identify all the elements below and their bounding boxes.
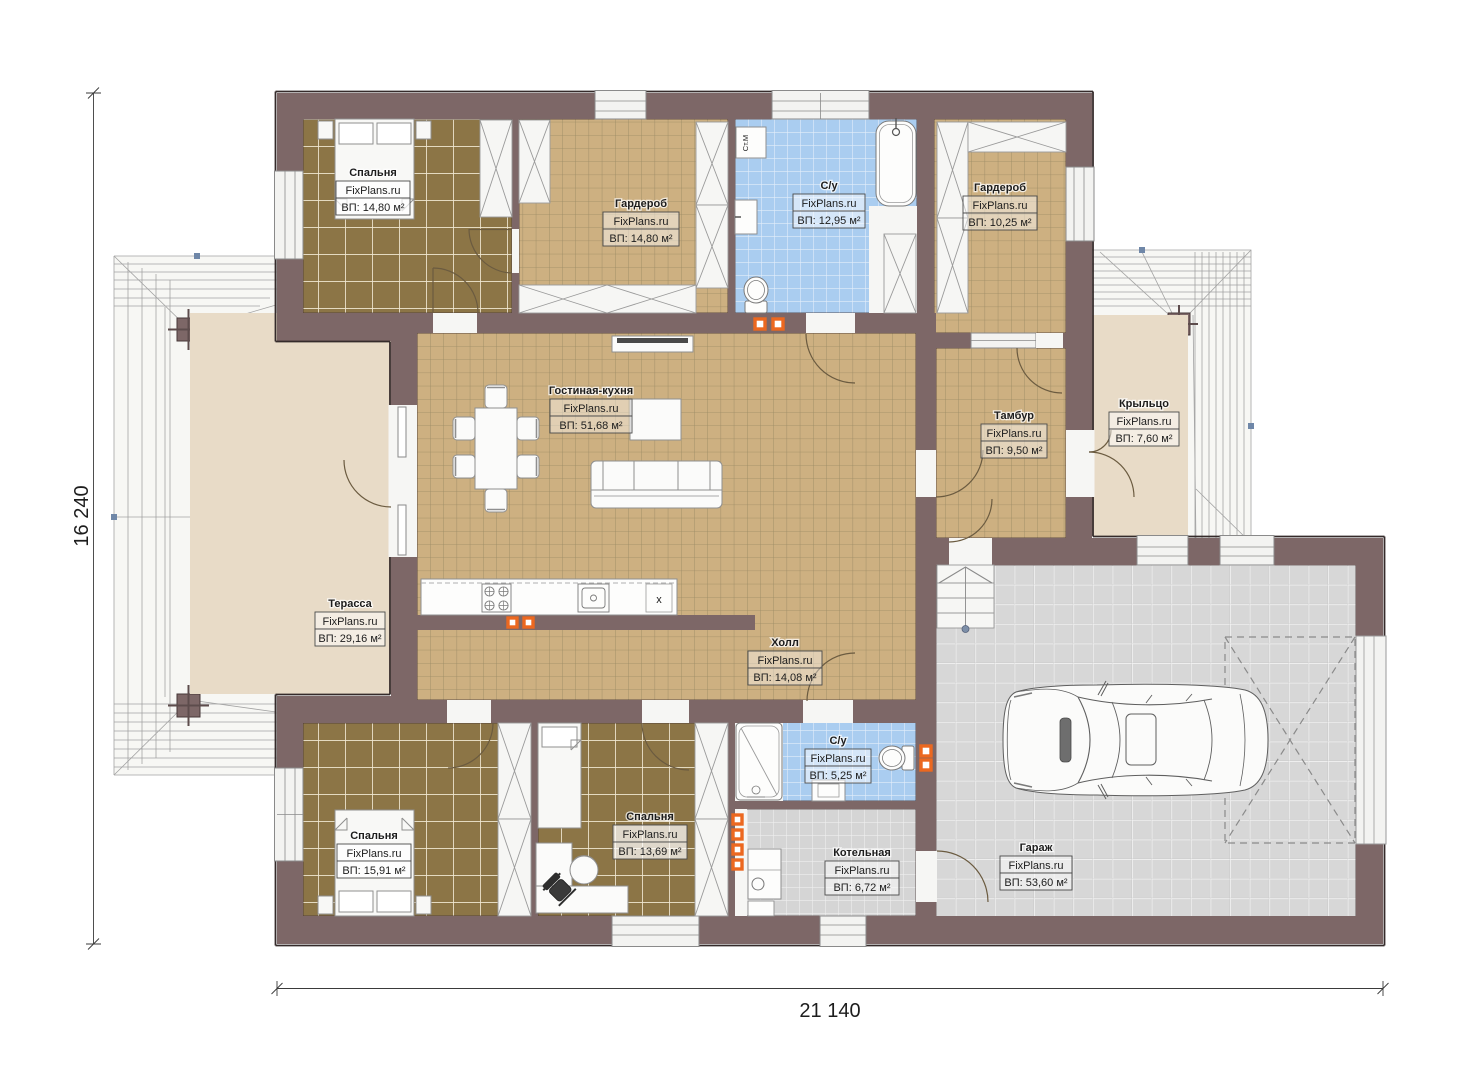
svg-text:Спальня: Спальня: [349, 167, 397, 179]
svg-text:ВП: 10,25 м²: ВП: 10,25 м²: [968, 217, 1032, 229]
svg-text:Котельная: Котельная: [833, 847, 891, 859]
svg-text:FixPlans.ru: FixPlans.ru: [801, 198, 856, 210]
svg-text:FixPlans.ru: FixPlans.ru: [810, 753, 865, 765]
svg-text:FixPlans.ru: FixPlans.ru: [1008, 860, 1063, 872]
svg-text:FixPlans.ru: FixPlans.ru: [972, 200, 1027, 212]
svg-text:Гостиная-кухня: Гостиная-кухня: [549, 385, 633, 397]
svg-text:Тамбур: Тамбур: [994, 410, 1034, 422]
svg-text:FixPlans.ru: FixPlans.ru: [986, 428, 1041, 440]
svg-text:Гараж: Гараж: [1020, 842, 1053, 854]
svg-text:Гардероб: Гардероб: [974, 182, 1026, 194]
svg-text:FixPlans.ru: FixPlans.ru: [834, 865, 889, 877]
svg-text:ВП: 13,69 м²: ВП: 13,69 м²: [618, 846, 682, 858]
svg-text:Гардероб: Гардероб: [615, 198, 667, 210]
svg-text:x: x: [656, 594, 662, 606]
svg-text:ВП: 14,08 м²: ВП: 14,08 м²: [753, 672, 817, 684]
svg-text:С/у: С/у: [829, 735, 847, 747]
svg-text:Спальня: Спальня: [626, 811, 674, 823]
svg-text:Терасса: Терасса: [328, 598, 372, 610]
svg-text:ВП: 9,50 м²: ВП: 9,50 м²: [985, 445, 1042, 457]
svg-text:ВП: 15,91 м²: ВП: 15,91 м²: [342, 865, 406, 877]
svg-text:Ст.М: Ст.М: [741, 135, 750, 151]
svg-text:FixPlans.ru: FixPlans.ru: [1116, 416, 1171, 428]
svg-text:FixPlans.ru: FixPlans.ru: [613, 216, 668, 228]
svg-text:ВП: 12,95 м²: ВП: 12,95 м²: [797, 215, 861, 227]
svg-text:FixPlans.ru: FixPlans.ru: [622, 829, 677, 841]
svg-text:16 240: 16 240: [71, 485, 93, 546]
svg-text:С/у: С/у: [820, 180, 838, 192]
svg-text:FixPlans.ru: FixPlans.ru: [345, 185, 400, 197]
svg-text:ВП: 5,25 м²: ВП: 5,25 м²: [809, 770, 866, 782]
svg-text:21 140: 21 140: [799, 1000, 860, 1022]
svg-text:Холл: Холл: [771, 637, 799, 649]
svg-text:FixPlans.ru: FixPlans.ru: [322, 616, 377, 628]
svg-text:ВП: 7,60 м²: ВП: 7,60 м²: [1115, 433, 1172, 445]
svg-text:ВП: 14,80 м²: ВП: 14,80 м²: [341, 202, 405, 214]
svg-text:ВП: 14,80 м²: ВП: 14,80 м²: [609, 233, 673, 245]
svg-text:FixPlans.ru: FixPlans.ru: [757, 655, 812, 667]
svg-text:ВП: 6,72 м²: ВП: 6,72 м²: [833, 882, 890, 894]
svg-text:ВП: 51,68 м²: ВП: 51,68 м²: [559, 420, 623, 432]
svg-text:ВП: 53,60 м²: ВП: 53,60 м²: [1004, 877, 1068, 889]
svg-text:Спальня: Спальня: [350, 830, 398, 842]
svg-text:FixPlans.ru: FixPlans.ru: [346, 848, 401, 860]
svg-text:Крыльцо: Крыльцо: [1119, 398, 1169, 410]
svg-text:ВП: 29,16 м²: ВП: 29,16 м²: [318, 633, 382, 645]
svg-text:FixPlans.ru: FixPlans.ru: [563, 403, 618, 415]
